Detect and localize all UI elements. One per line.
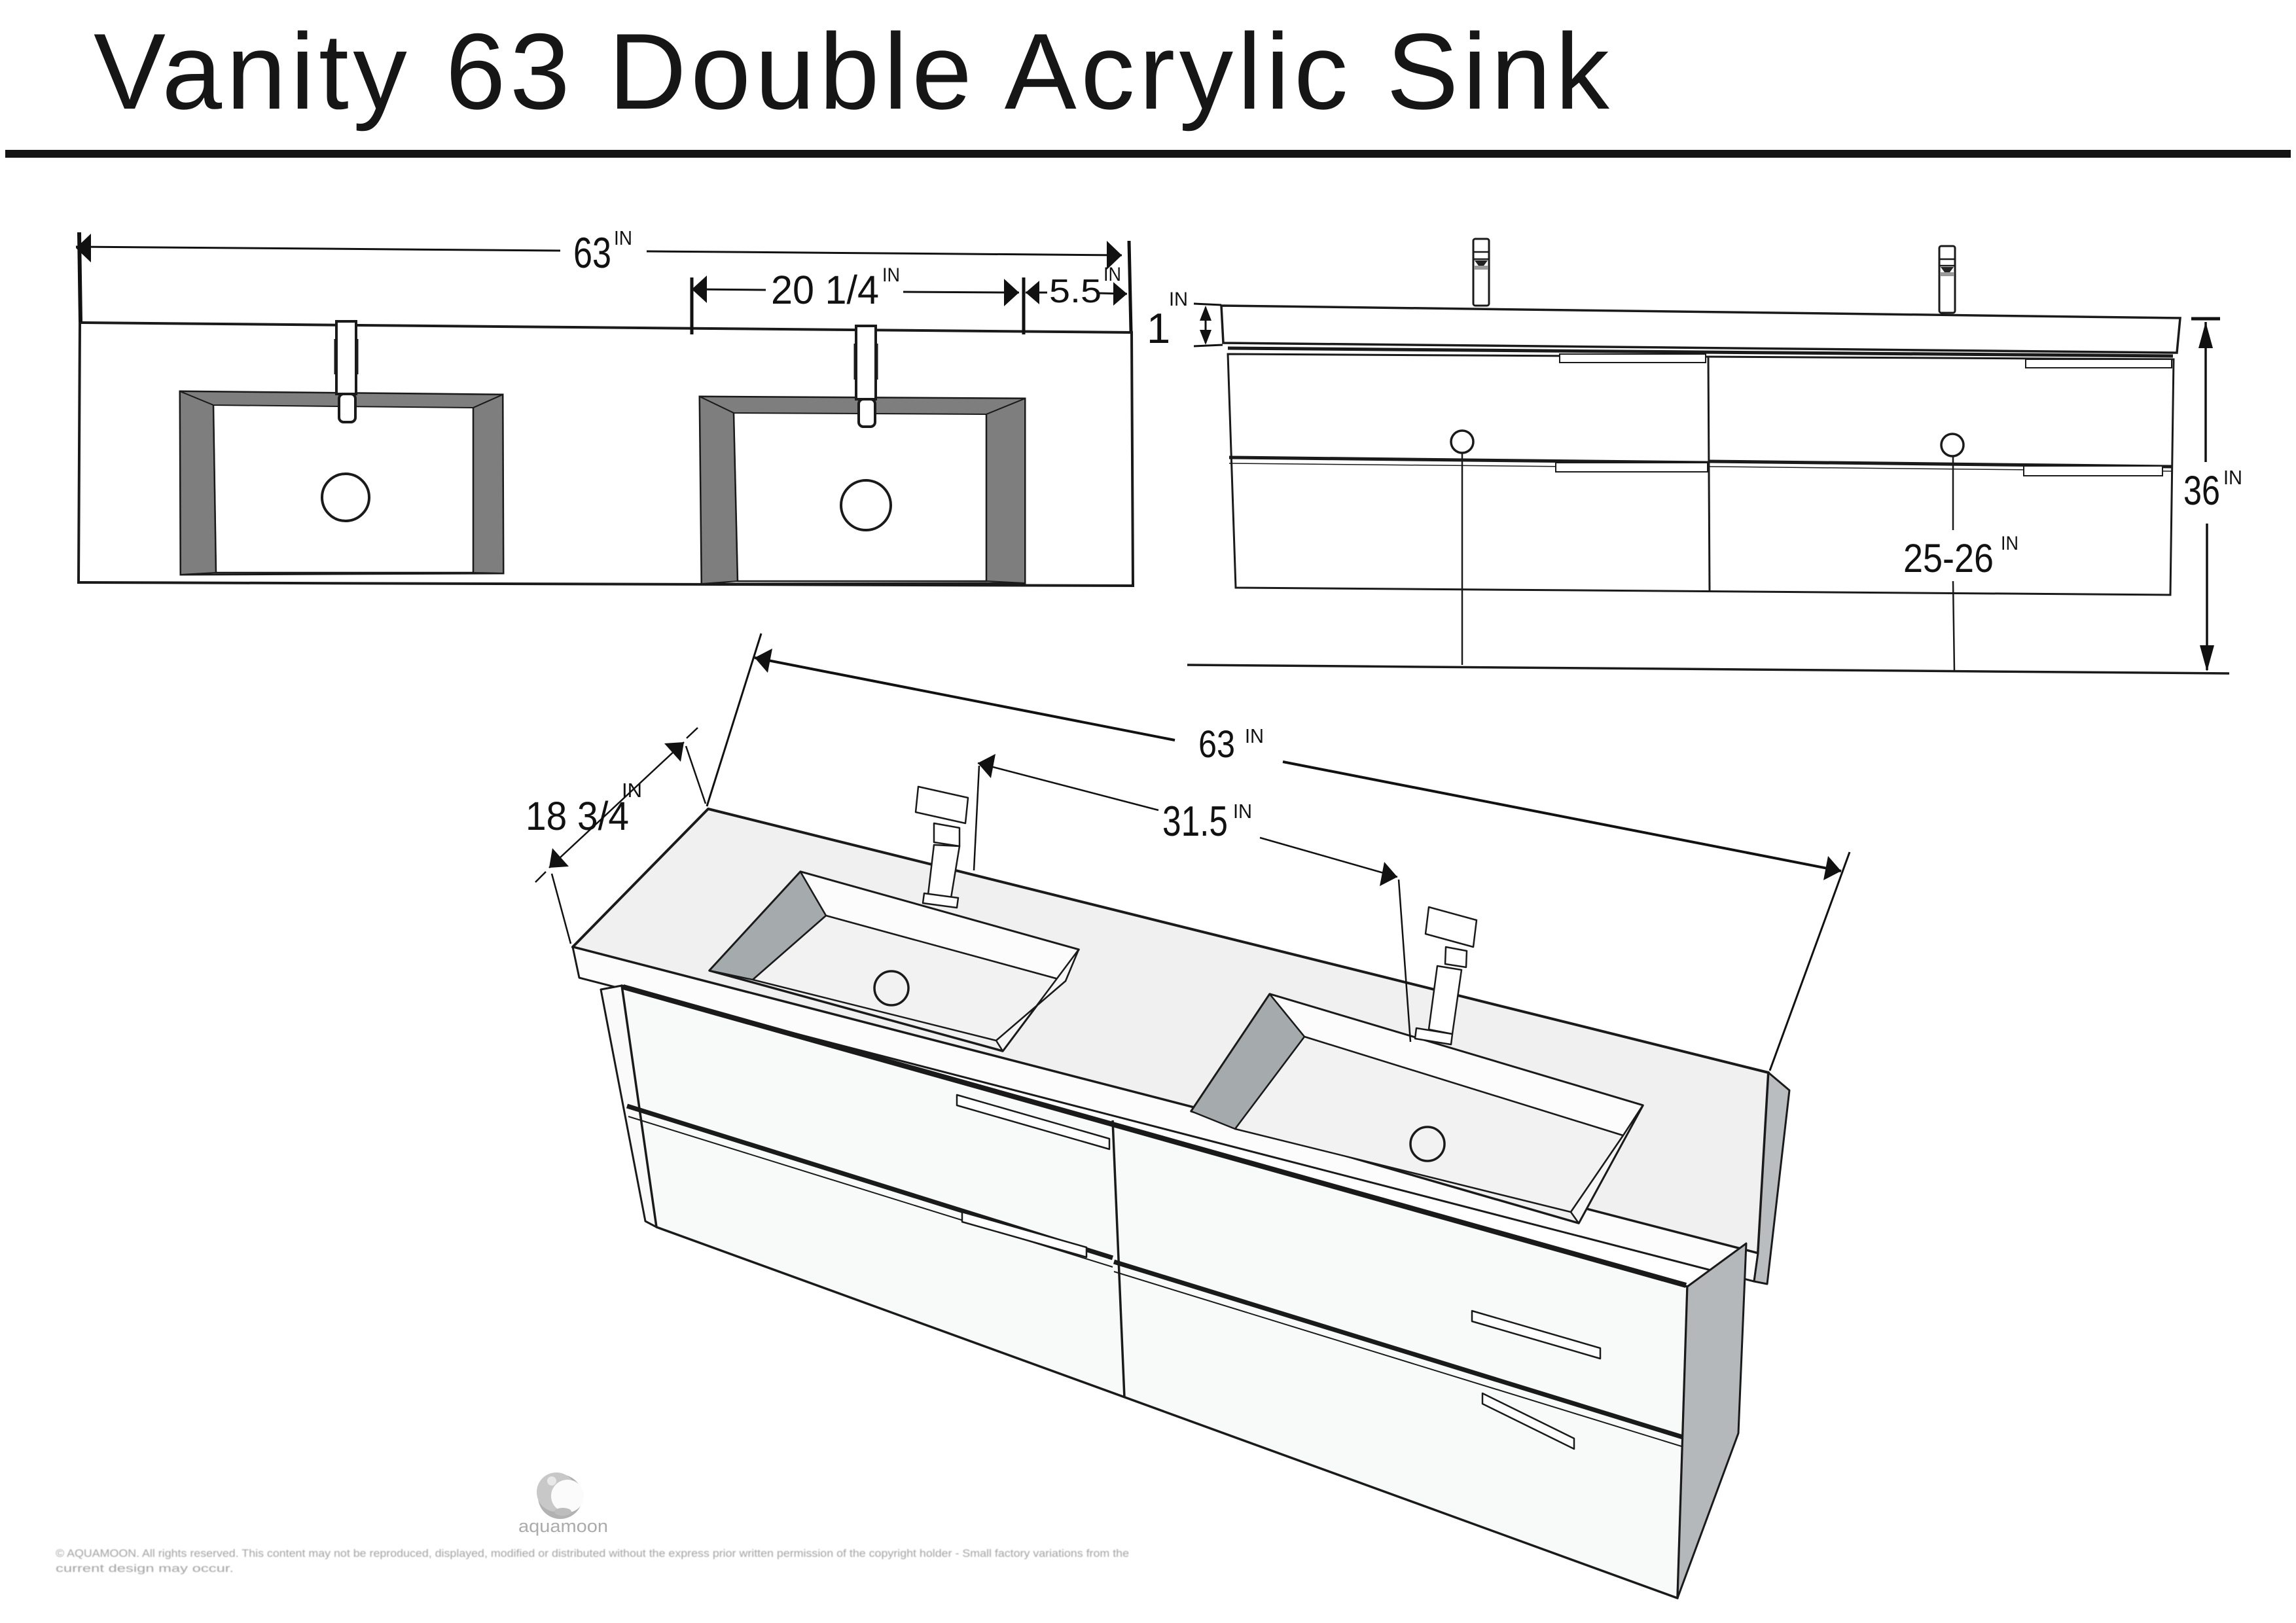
svg-text:Vanity 63 Double Acrylic Sink: Vanity 63 Double Acrylic Sink	[94, 11, 1613, 132]
svg-text:current design may occur.: current design may occur.	[56, 1563, 234, 1575]
svg-text:aquamoon: aquamoon	[518, 1516, 608, 1536]
svg-text:IN: IN	[2223, 466, 2242, 489]
svg-text:IN: IN	[614, 226, 632, 249]
svg-text:63: 63	[573, 228, 611, 277]
svg-text:20 1/4: 20 1/4	[771, 268, 879, 312]
svg-text:IN: IN	[2001, 533, 2018, 554]
svg-text:31.5: 31.5	[1162, 797, 1228, 845]
svg-text:36: 36	[2183, 468, 2220, 514]
svg-text:1: 1	[1147, 304, 1170, 352]
svg-text:IN: IN	[622, 779, 642, 802]
svg-text:25-26: 25-26	[1903, 536, 1994, 580]
svg-text:IN: IN	[1169, 289, 1188, 310]
svg-text:IN: IN	[1103, 264, 1121, 285]
svg-text:18 3/4: 18 3/4	[526, 794, 629, 838]
svg-text:IN: IN	[882, 264, 900, 286]
svg-text:© AQUAMOON. All rights reserve: © AQUAMOON. All rights reserved. This co…	[56, 1548, 1129, 1560]
svg-text:63: 63	[1198, 723, 1235, 766]
svg-text:5.5: 5.5	[1049, 272, 1102, 310]
svg-text:IN: IN	[1233, 800, 1252, 823]
svg-text:IN: IN	[1245, 724, 1264, 747]
